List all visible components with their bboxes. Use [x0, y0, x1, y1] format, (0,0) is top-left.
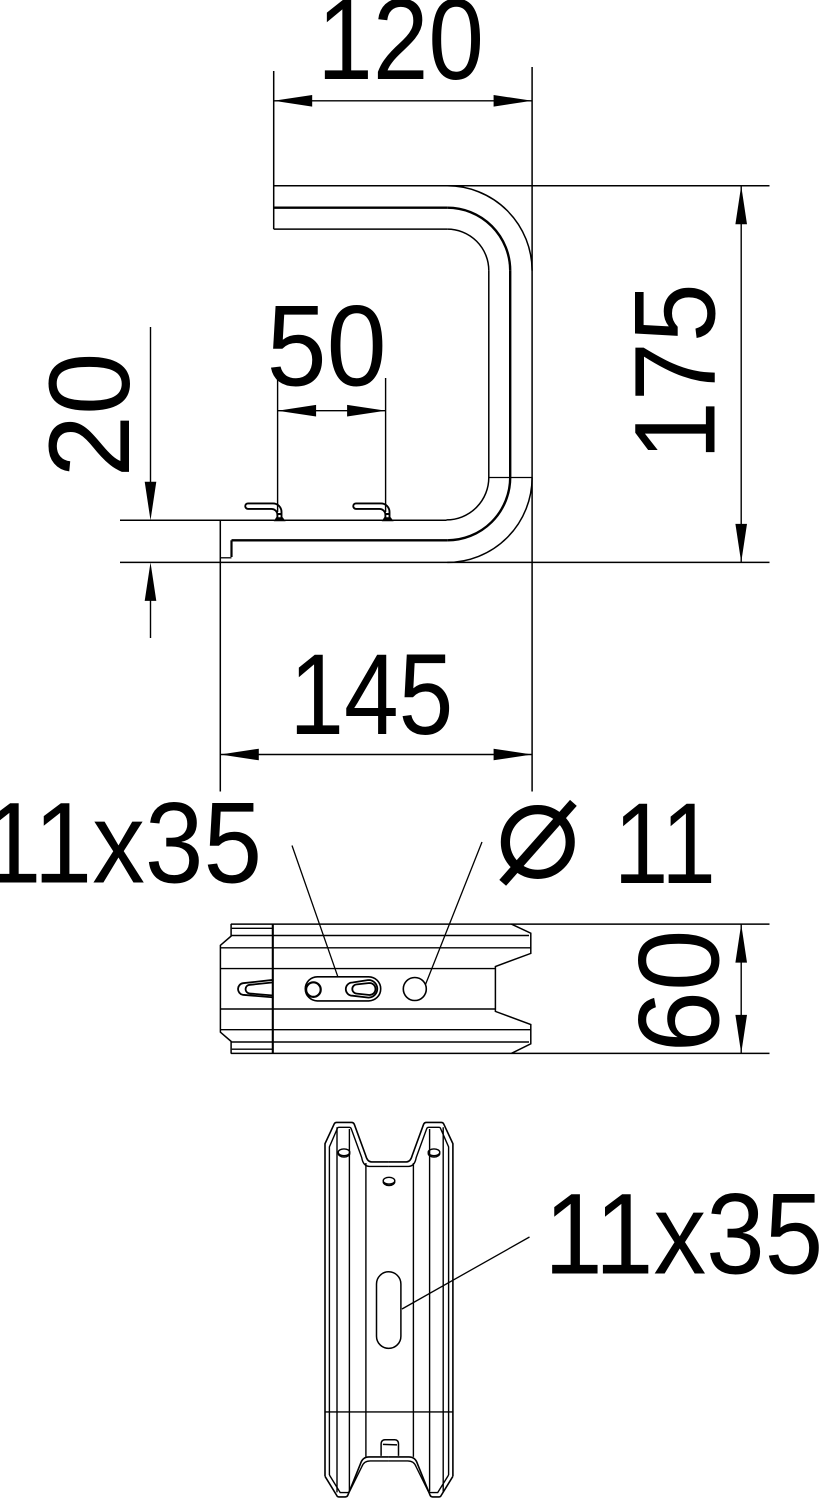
svg-text:120: 120: [317, 0, 484, 104]
svg-text:60: 60: [614, 930, 743, 1053]
svg-text:20: 20: [26, 352, 154, 477]
svg-text:11x35: 11x35: [544, 1170, 823, 1298]
svg-text:11: 11: [614, 779, 716, 908]
svg-text:50: 50: [267, 281, 387, 410]
svg-text:145: 145: [289, 630, 453, 759]
svg-text:175: 175: [612, 283, 740, 460]
svg-text:11x35: 11x35: [0, 779, 262, 907]
